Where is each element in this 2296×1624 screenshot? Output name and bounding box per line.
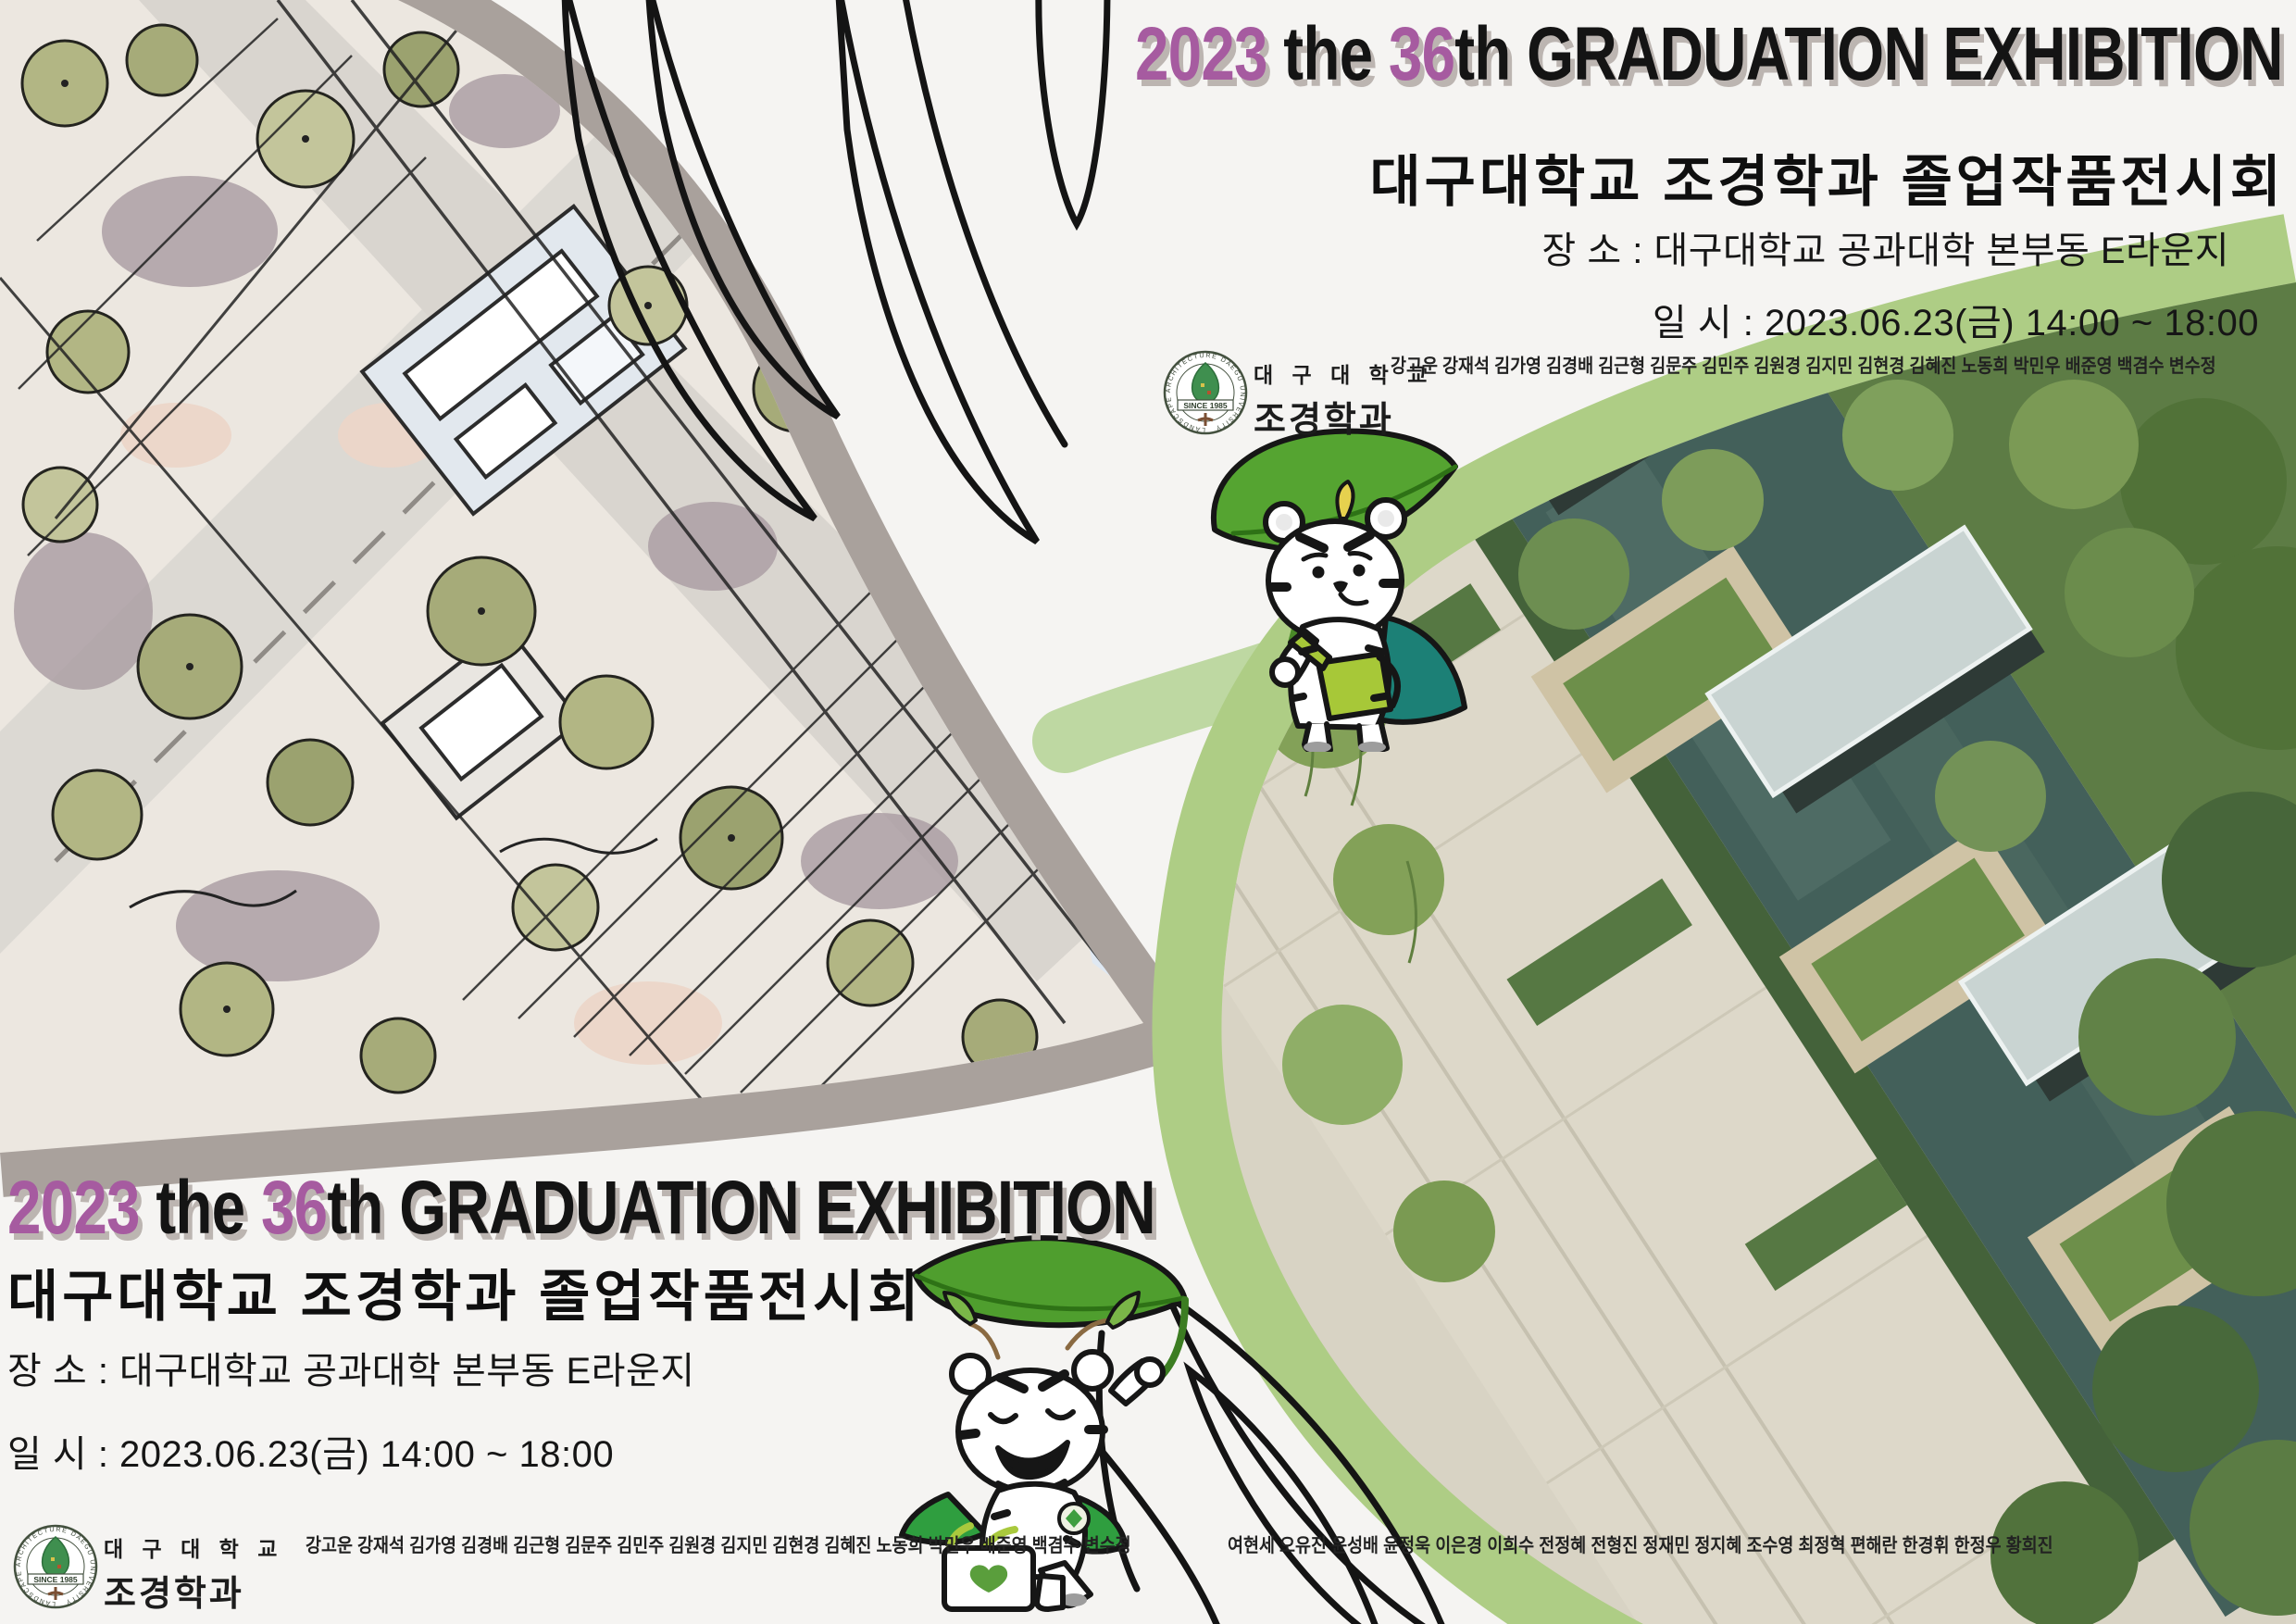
names-line-1: 강고운 강재석 김가영 김경배 김근형 김문주 김민주 김원경 김지민 김현경 … (306, 1526, 1131, 1566)
title-number: 36 (261, 1165, 327, 1252)
department-seal-bottom: LANDSCAPE ARCHITECTURE DAEGU UNIVERSITY … (13, 1522, 98, 1611)
venue-bottom: 장 소 : 대구대학교 공과대학 본부동 E라운지 (7, 1341, 695, 1394)
title-the: the (1284, 11, 1373, 98)
title-the: the (156, 1165, 244, 1252)
title-number: 36 (1389, 11, 1454, 98)
department-seal-top: LANDSCAPE ARCHITECTURE DAEGU UNIVERSITY … (1163, 348, 1248, 437)
seal-since-text: SINCE 1985 (1183, 401, 1228, 410)
names-line-1: 강고운 강재석 김가영 김경배 김근형 김문주 김민주 김원경 김지민 김현경 … (1391, 346, 2216, 386)
datetime-top: 일 시 : 2023.06.23(금) 14:00 ~ 18:00 (1653, 293, 2259, 346)
names-bottom: 강고운 강재석 김가영 김경배 김근형 김문주 김민주 김원경 김지민 김현경 … (306, 1526, 2145, 1566)
site-plan-drawing (0, 0, 1222, 1167)
datetime-bottom: 일 시 : 2023.06.23(금) 14:00 ~ 18:00 (7, 1424, 614, 1478)
logo-dept-name: 조경학과 (104, 1565, 283, 1616)
title-year: 2023 (1135, 11, 1267, 98)
venue-top: 장 소 : 대구대학교 공과대학 본부동 E라운지 (1541, 220, 2229, 274)
title-kr-bottom: 대구대학교 조경학과 졸업작품전시회 (7, 1252, 923, 1332)
names-line-2: 여현세 오유진 윤성배 윤정욱 이은경 이희수 전정혜 전형진 정재민 정지혜 … (1228, 1526, 2053, 1566)
title-rest: GRADUATION EXHIBITION (1527, 11, 2283, 98)
title-bottom: 2023the36thGRADUATION EXHIBITION (7, 1165, 1442, 1252)
department-logo-bottom: 대 구 대 학 교 조경학과 (104, 1531, 283, 1616)
title-kr-top: 대구대학교 조경학과 졸업작품전시회 (1369, 137, 2285, 218)
title-rest: GRADUATION EXHIBITION (399, 1165, 1155, 1252)
graduation-exhibition-poster: 2023the36thGRADUATION EXHIBITION 대구대학교 조… (0, 0, 2296, 1624)
title-suffix: th (327, 1165, 382, 1252)
title-suffix: th (1455, 11, 1511, 98)
logo-dept-name: 조경학과 (1254, 391, 1433, 442)
seal-since-text: SINCE 1985 (33, 1575, 78, 1584)
names-top: 강고운 강재석 김가영 김경배 김근형 김문주 김민주 김원경 김지민 김현경 … (1391, 346, 2296, 386)
logo-univ-name: 대 구 대 학 교 (104, 1531, 283, 1563)
title-top: 2023the36thGRADUATION EXHIBITION (848, 11, 2283, 98)
tiger-mascot-umbrella (1178, 418, 1502, 752)
title-year: 2023 (7, 1165, 140, 1252)
